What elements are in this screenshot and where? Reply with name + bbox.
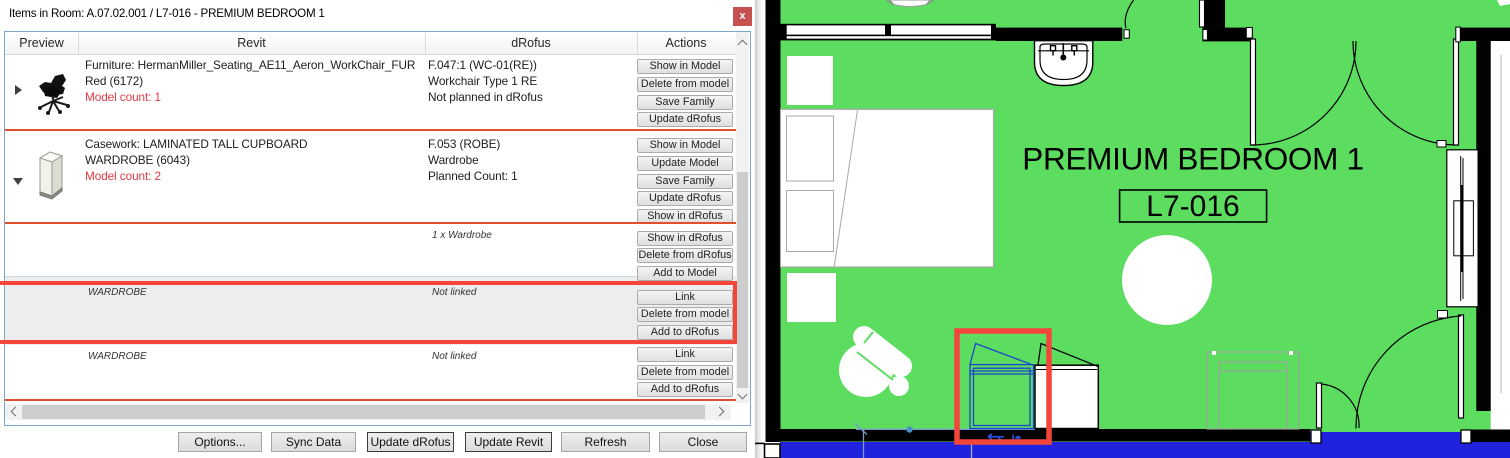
svg-text:L7-016: L7-016 (1146, 190, 1239, 223)
svg-text:PREMIUM BEDROOM 1: PREMIUM BEDROOM 1 (1022, 141, 1363, 177)
